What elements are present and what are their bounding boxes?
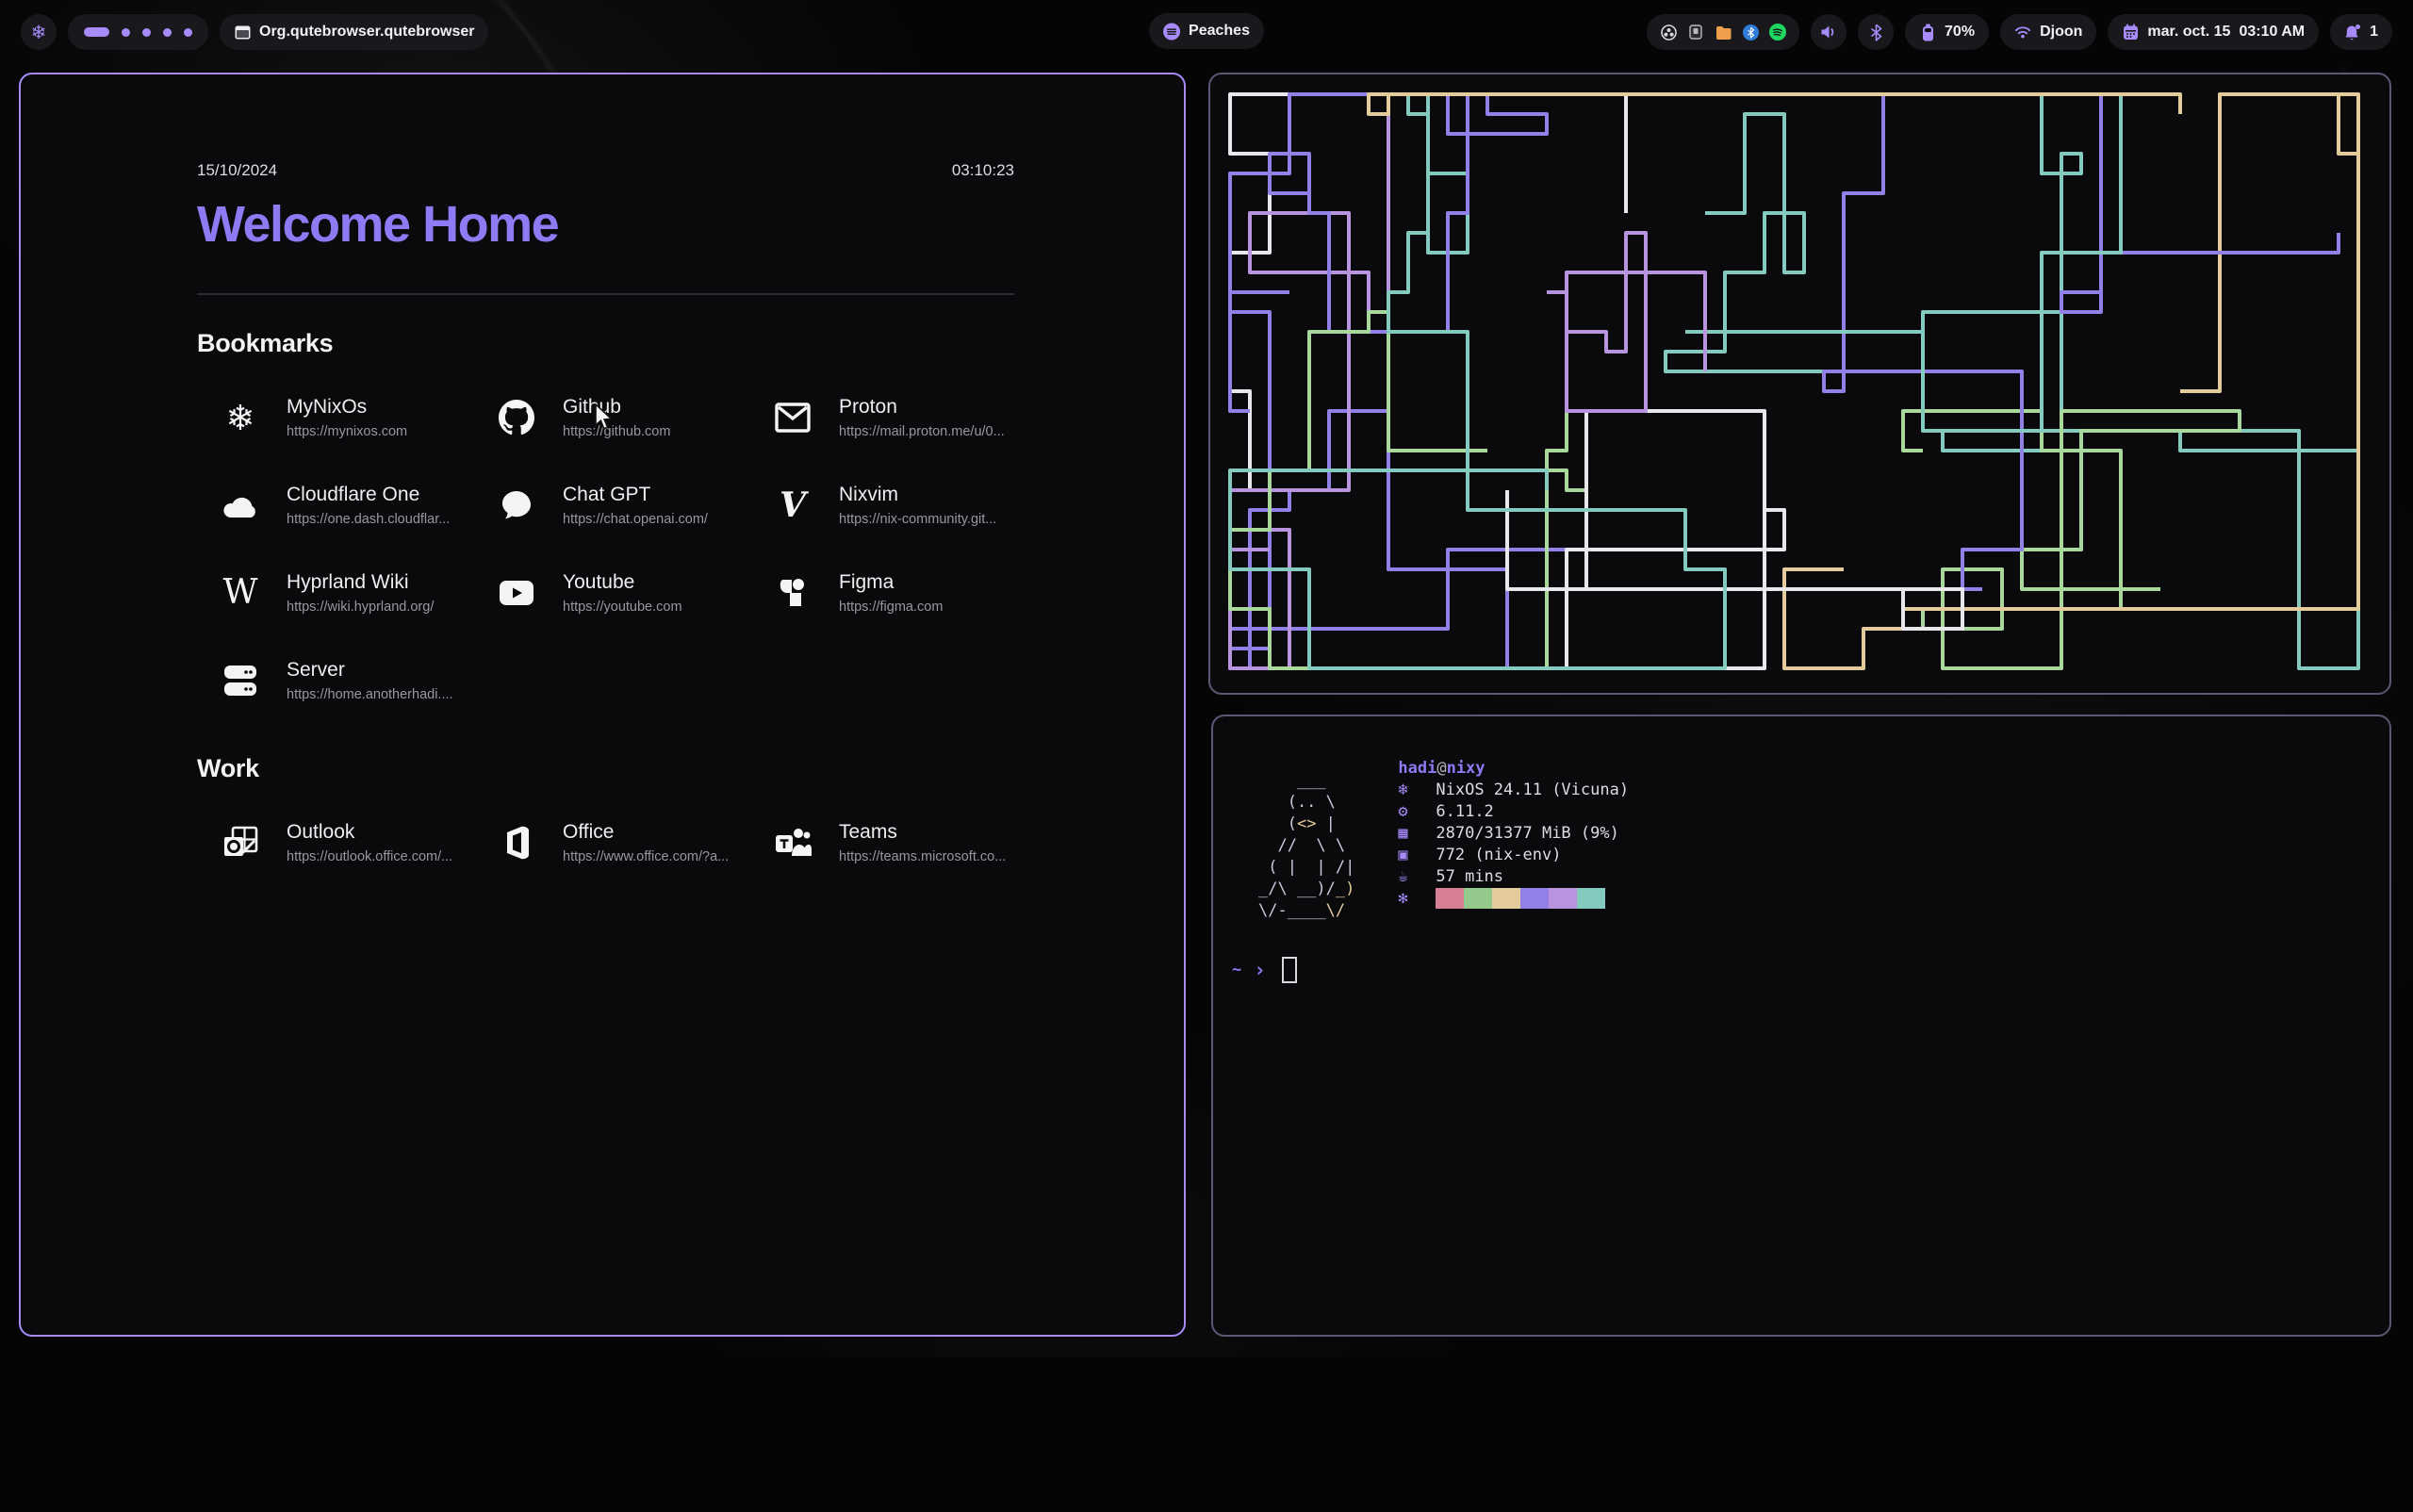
bookmark-url: https://mail.proton.me/u/0...: [839, 424, 1005, 439]
wifi-icon: [2014, 24, 2031, 41]
qutebrowser-window[interactable]: 15/10/2024 03:10:23 Welcome Home Bookmar…: [19, 73, 1186, 1337]
bookmark-teams[interactable]: Teamshttps://teams.microsoft.co...: [774, 814, 1050, 871]
nixvim-v-icon: V: [774, 486, 812, 524]
bookmark-outlook[interactable]: Outlookhttps://outlook.office.com/...: [222, 814, 498, 871]
workspace-dot[interactable]: [142, 28, 151, 37]
bookmark-url: https://figma.com: [839, 600, 943, 615]
network-ssid: Djoon: [2040, 24, 2082, 41]
battery-percent: 70%: [1945, 24, 1975, 41]
bookmark-nixvim[interactable]: V Nixvimhttps://nix-community.git...: [774, 477, 1050, 534]
workspace-active[interactable]: [84, 27, 109, 37]
fetch-at: @: [1436, 759, 1446, 778]
media-label: Peaches: [1189, 23, 1250, 40]
bookmark-label: Proton: [839, 396, 1005, 419]
palette-swatch: [1436, 888, 1464, 909]
bookmark-server[interactable]: Serverhttps://home.anotherhadi....: [222, 652, 498, 709]
bookmark-url: https://home.anotherhadi....: [287, 687, 453, 702]
bookmark-cloudflare-one[interactable]: Cloudflare Onehttps://one.dash.cloudflar…: [222, 477, 498, 534]
notification-chip[interactable]: 1: [2330, 14, 2392, 50]
workspace-dot[interactable]: [122, 28, 130, 37]
palette-swatch: [1520, 888, 1549, 909]
outlook-icon: [222, 824, 259, 862]
bookmark-url: https://wiki.hyprland.org/: [287, 600, 434, 615]
bookmark-url: https://www.office.com/?a...: [563, 849, 729, 864]
section-heading-bookmarks: Bookmarks: [197, 329, 1014, 358]
server-stack-icon: [222, 662, 259, 699]
prompt-symbol: ›: [1254, 960, 1266, 981]
battery-chip[interactable]: 70%: [1905, 14, 1989, 50]
fetch-info: hadi@nixy ❄NixOS 24.11 (Vicuna) ⚙6.11.2 …: [1398, 758, 1629, 922]
bookmark-label: Server: [287, 659, 453, 682]
fetch-uptime: 57 mins: [1436, 867, 1503, 886]
bookmark-url: https://chat.openai.com/: [563, 512, 708, 527]
kdeconnect-tray-icon[interactable]: [1687, 24, 1704, 41]
bookmark-url: https://one.dash.cloudflar...: [287, 512, 450, 527]
palette-swatch: [1549, 888, 1577, 909]
status-bar: ❄ Org.qutebrowser.qutebrowser Peaches: [21, 13, 2392, 51]
memory-icon: ▦: [1398, 823, 1436, 845]
terminal-content: ___ (.. \ (<> | // \ \ ( | | /| _/\ __)/…: [1213, 716, 2389, 1335]
workspace-dot[interactable]: [163, 28, 172, 37]
palette-swatch: [1577, 888, 1605, 909]
bookmark-label: Figma: [839, 571, 943, 594]
fetch-kernel: 6.11.2: [1436, 802, 1493, 821]
fetch-userhost: hadi@nixy: [1398, 758, 1629, 780]
bluetooth-tray-icon[interactable]: [1742, 24, 1759, 41]
bookmark-url: https://youtube.com: [563, 600, 682, 615]
fetch-kernel-line: ⚙6.11.2: [1398, 801, 1629, 823]
network-chip[interactable]: Djoon: [2000, 14, 2096, 50]
bookmark-url: https://outlook.office.com/...: [287, 849, 452, 864]
nix-snowflake-icon: ❄: [31, 21, 47, 43]
workspace-dot[interactable]: [184, 28, 192, 37]
bookmark-label: Nixvim: [839, 484, 996, 506]
prompt-cwd: ~: [1232, 960, 1241, 981]
uptime-icon: ☕: [1398, 866, 1436, 888]
clock-time: 03:10 AM: [2239, 24, 2305, 41]
bookmark-label: Chat GPT: [563, 484, 708, 506]
bookmark-label: Github: [563, 396, 670, 419]
window-title: Org.qutebrowser.qutebrowser: [259, 24, 474, 41]
volume-chip[interactable]: [1811, 14, 1847, 50]
fastfetch-output: ___ (.. \ (<> | // \ \ ( | | /| _/\ __)/…: [1258, 758, 2372, 922]
bookmark-label: MyNixOs: [287, 396, 407, 419]
fetch-palette-line: ✻: [1398, 888, 1629, 910]
bookmark-url: https://teams.microsoft.co...: [839, 849, 1006, 864]
battery-icon: [1919, 24, 1936, 41]
fetch-packages: 772 (nix-env): [1436, 846, 1561, 864]
media-chip[interactable]: Peaches: [1149, 13, 1264, 49]
bookmark-label: Youtube: [563, 571, 682, 594]
bookmarks-grid: ❄ MyNixOshttps://mynixos.com Githubhttps…: [222, 389, 1014, 709]
youtube-play-icon: [498, 574, 535, 612]
bookmark-url: https://github.com: [563, 424, 670, 439]
speaker-icon: [1820, 24, 1837, 41]
terminal-cursor: [1282, 957, 1297, 983]
bookmark-proton[interactable]: Protonhttps://mail.proton.me/u/0...: [774, 389, 1050, 446]
bluetooth-icon: [1867, 24, 1884, 41]
github-icon: [498, 399, 535, 436]
spotify-tray-icon[interactable]: [1769, 24, 1786, 41]
packages-icon: ▣: [1398, 845, 1436, 866]
divider: [197, 293, 1014, 295]
wikipedia-w-icon: W: [222, 574, 259, 612]
shell-prompt[interactable]: ~ ›: [1232, 957, 2372, 983]
cloud-icon: [222, 486, 259, 524]
bookmark-label: Outlook: [287, 821, 452, 844]
bar-left: ❄ Org.qutebrowser.qutebrowser: [21, 14, 488, 50]
bookmark-chatgpt[interactable]: Chat GPThttps://chat.openai.com/: [498, 477, 774, 534]
bookmark-url: https://mynixos.com: [287, 424, 407, 439]
bookmark-youtube[interactable]: Youtubehttps://youtube.com: [498, 565, 774, 621]
startpage-date: 15/10/2024: [197, 161, 277, 180]
bookmark-figma[interactable]: Figmahttps://figma.com: [774, 565, 1050, 621]
fetch-packages-line: ▣772 (nix-env): [1398, 845, 1629, 866]
workspace-indicator[interactable]: [68, 14, 208, 50]
fetch-host: nixy: [1447, 759, 1486, 778]
fetch-palette-swatches: [1436, 888, 1605, 909]
system-tray[interactable]: [1647, 14, 1799, 50]
office-icon: [498, 824, 535, 862]
bookmark-label: Teams: [839, 821, 1006, 844]
teams-icon: [774, 824, 812, 862]
fetch-uptime-line: ☕57 mins: [1398, 866, 1629, 888]
window-icon: [234, 24, 251, 41]
nix-snowflake-icon: ❄: [222, 399, 259, 436]
kernel-icon: ⚙: [1398, 801, 1436, 823]
fetch-memory-line: ▦2870/31377 MiB (9%): [1398, 823, 1629, 845]
palette-icon: ✻: [1398, 888, 1436, 910]
bookmark-label: Office: [563, 821, 729, 844]
bookmark-github[interactable]: Githubhttps://github.com: [498, 389, 774, 446]
bookmark-office[interactable]: Officehttps://www.office.com/?a...: [498, 814, 774, 871]
bookmark-label: Hyprland Wiki: [287, 571, 434, 594]
window-title-chip[interactable]: Org.qutebrowser.qutebrowser: [220, 14, 488, 50]
page-title: Welcome Home: [197, 195, 1014, 254]
os-icon: ❄: [1398, 780, 1436, 801]
fetch-os-line: ❄NixOS 24.11 (Vicuna): [1398, 780, 1629, 801]
chat-bubble-icon: [498, 486, 535, 524]
fastfetch-terminal-window[interactable]: ___ (.. \ (<> | // \ \ ( | | /| _/\ __)/…: [1211, 715, 2391, 1337]
fetch-memory: 2870/31377 MiB (9%): [1436, 824, 1618, 843]
bookmark-hyprland-wiki[interactable]: W Hyprland Wikihttps://wiki.hyprland.org…: [222, 565, 498, 621]
clock-date: mar. oct. 15: [2147, 24, 2230, 41]
mouse-cursor: [594, 403, 615, 436]
palette-swatch: [1492, 888, 1520, 909]
fetch-art: ___ (.. \ (<> | // \ \ ( | | /| _/\ __)/…: [1258, 770, 1354, 922]
figma-icon: [774, 574, 812, 612]
palette-swatch: [1464, 888, 1492, 909]
files-tray-icon[interactable]: [1715, 24, 1732, 41]
work-grid: Outlookhttps://outlook.office.com/... Of…: [222, 814, 1014, 871]
bookmark-url: https://nix-community.git...: [839, 512, 996, 527]
pipes-terminal-window[interactable]: [1208, 73, 2391, 695]
bookmark-label: Cloudflare One: [287, 484, 450, 506]
calendar-icon: [2122, 24, 2139, 41]
fetch-user: hadi: [1398, 759, 1436, 778]
clock-chip[interactable]: mar. oct. 15 03:10 AM: [2108, 14, 2319, 50]
bookmark-mynixos[interactable]: ❄ MyNixOshttps://mynixos.com: [222, 389, 498, 446]
bell-icon: [2344, 24, 2361, 41]
startpage: 15/10/2024 03:10:23 Welcome Home Bookmar…: [21, 74, 1184, 1335]
launcher-button[interactable]: ❄: [21, 14, 57, 50]
obs-tray-icon[interactable]: [1660, 24, 1677, 41]
spotify-icon: [1163, 23, 1180, 40]
mail-envelope-icon: [774, 399, 812, 436]
notification-count: 1: [2370, 24, 2378, 41]
pipes-art: [1210, 74, 2389, 693]
fetch-os: NixOS 24.11 (Vicuna): [1436, 781, 1629, 799]
startpage-clock: 03:10:23: [952, 161, 1014, 180]
bluetooth-chip[interactable]: [1858, 14, 1894, 50]
bar-right: 70% Djoon mar. oct. 15 03:10 AM 1: [1647, 14, 2392, 50]
section-heading-work: Work: [197, 754, 1014, 783]
